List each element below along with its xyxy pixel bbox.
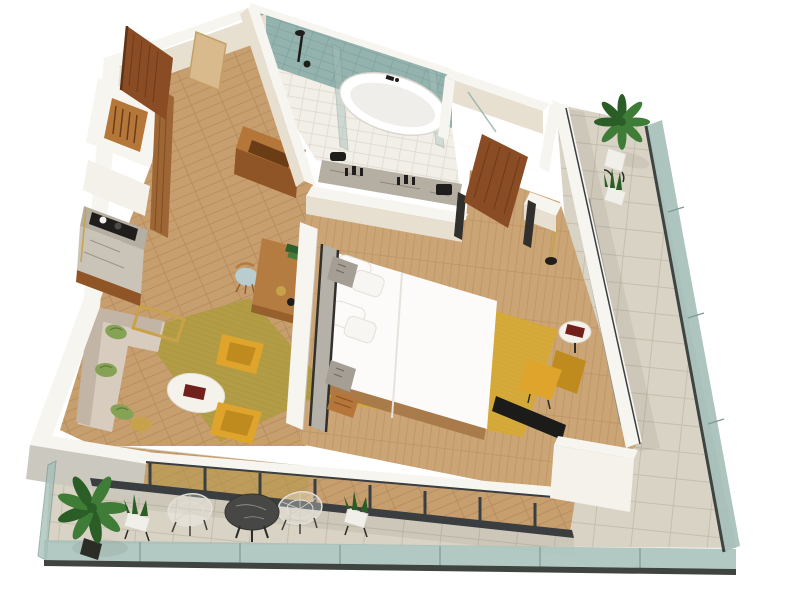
palm-ne-leaves	[594, 94, 650, 150]
terrace-table-top	[225, 494, 279, 530]
kettle-white	[100, 217, 107, 224]
desk-cup	[287, 298, 295, 306]
floor-lamp-base	[545, 257, 557, 265]
floor-plan-rendering	[0, 0, 800, 600]
kettle-black	[115, 223, 122, 230]
desk-lamp	[276, 286, 286, 296]
floor-plan-stage	[0, 0, 800, 600]
amenity-tray	[436, 184, 452, 195]
tissue-box	[330, 152, 346, 161]
